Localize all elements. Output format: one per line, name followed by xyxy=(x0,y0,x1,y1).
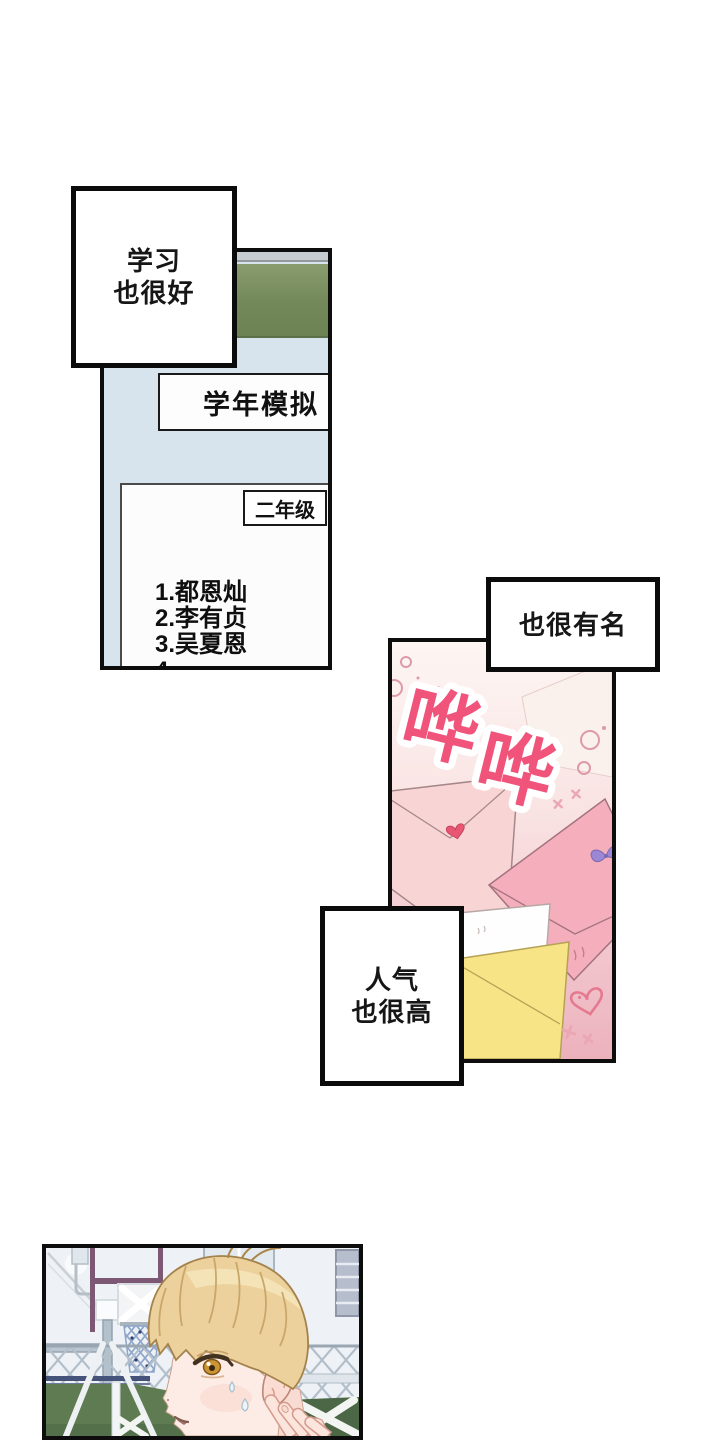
speech-bubble-study: 学习 也很好 xyxy=(71,186,237,368)
ranking-item: 2.李有贞 xyxy=(155,606,247,632)
window-right xyxy=(336,1250,359,1316)
bubble-line: 也很有名 xyxy=(519,609,627,641)
speech-bubble-popular: 人气 也很高 xyxy=(320,906,464,1086)
panel-basketball-court xyxy=(42,1244,363,1440)
grade-tag-label: 二年级 xyxy=(255,494,315,523)
ranking-paper: 二年级 1.都恩灿 2.李有贞 3.吴夏恩 4. xyxy=(120,483,328,666)
speech-bubble-famous: 也很有名 xyxy=(486,577,660,672)
grade-tag: 二年级 xyxy=(243,490,327,526)
bubble-line: 也很高 xyxy=(351,996,432,1028)
ranking-item: 1.都恩灿 xyxy=(155,580,247,606)
ranking-item: 4. xyxy=(155,658,247,670)
bubble-line: 学习 xyxy=(127,245,181,277)
exam-banner-label: 学年模拟 xyxy=(203,383,319,422)
bubble-line: 也很好 xyxy=(113,277,194,309)
court-illustration xyxy=(46,1248,359,1436)
exam-banner: 学年模拟 xyxy=(158,373,328,431)
ranking-item: 3.吴夏恩 xyxy=(155,632,247,658)
ranking-list: 1.都恩灿 2.李有贞 3.吴夏恩 4. xyxy=(155,580,247,670)
window-left xyxy=(72,1248,88,1264)
comic-page: 学年模拟 二年级 1.都恩灿 2.李有贞 3.吴夏恩 4. xyxy=(0,0,720,1440)
bubble-line: 人气 xyxy=(365,964,419,996)
